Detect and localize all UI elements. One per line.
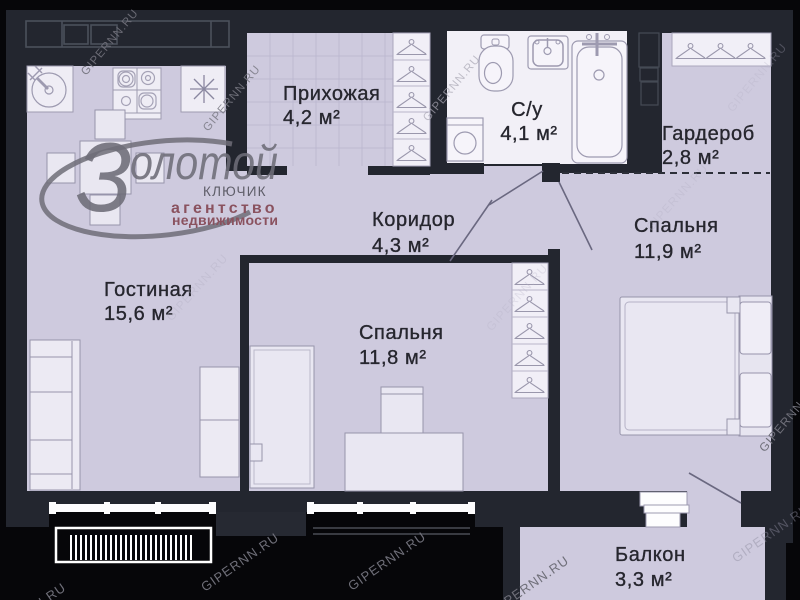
svg-text:недвижимости: недвижимости: [172, 212, 278, 228]
svg-text:4,2 м²: 4,2 м²: [283, 107, 340, 129]
svg-text:3,3 м²: 3,3 м²: [615, 569, 672, 591]
svg-text:КЛЮЧИК: КЛЮЧИК: [203, 184, 267, 199]
svg-text:4,1 м²: 4,1 м²: [500, 123, 557, 145]
svg-text:Гардероб: Гардероб: [662, 123, 755, 145]
svg-text:З: З: [76, 122, 132, 232]
svg-text:Балкон: Балкон: [615, 544, 686, 566]
svg-text:Прихожая: Прихожая: [283, 83, 380, 105]
svg-text:Коридор: Коридор: [372, 209, 455, 231]
svg-text:С/у: С/у: [511, 99, 543, 121]
svg-text:11,9 м²: 11,9 м²: [634, 241, 702, 263]
svg-text:2,8 м²: 2,8 м²: [662, 147, 719, 169]
svg-text:4,3 м²: 4,3 м²: [372, 235, 429, 257]
svg-text:олотой: олотой: [130, 137, 278, 190]
svg-text:Спальня: Спальня: [359, 322, 444, 344]
svg-text:11,8 м²: 11,8 м²: [359, 347, 427, 369]
